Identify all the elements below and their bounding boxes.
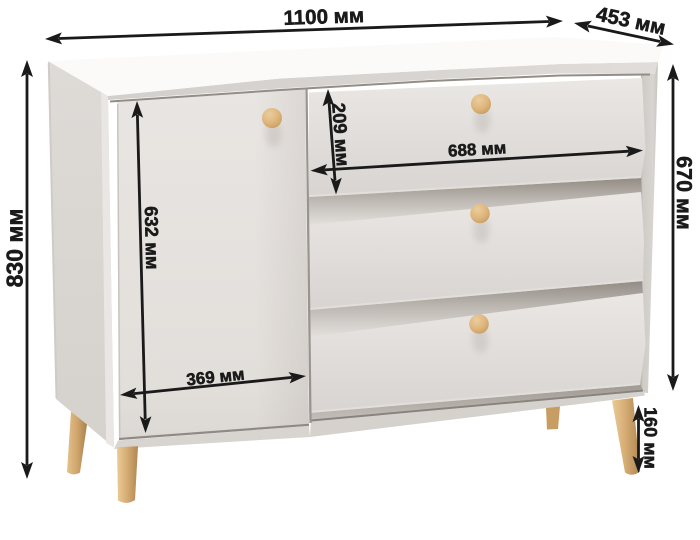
svg-text:670 мм: 670 мм (672, 156, 696, 230)
svg-text:830 мм: 830 мм (2, 209, 28, 288)
svg-text:632 мм: 632 мм (141, 206, 164, 270)
svg-text:1100 мм: 1100 мм (283, 4, 364, 30)
svg-text:160 мм: 160 мм (641, 407, 661, 469)
svg-text:688 мм: 688 мм (448, 138, 507, 160)
